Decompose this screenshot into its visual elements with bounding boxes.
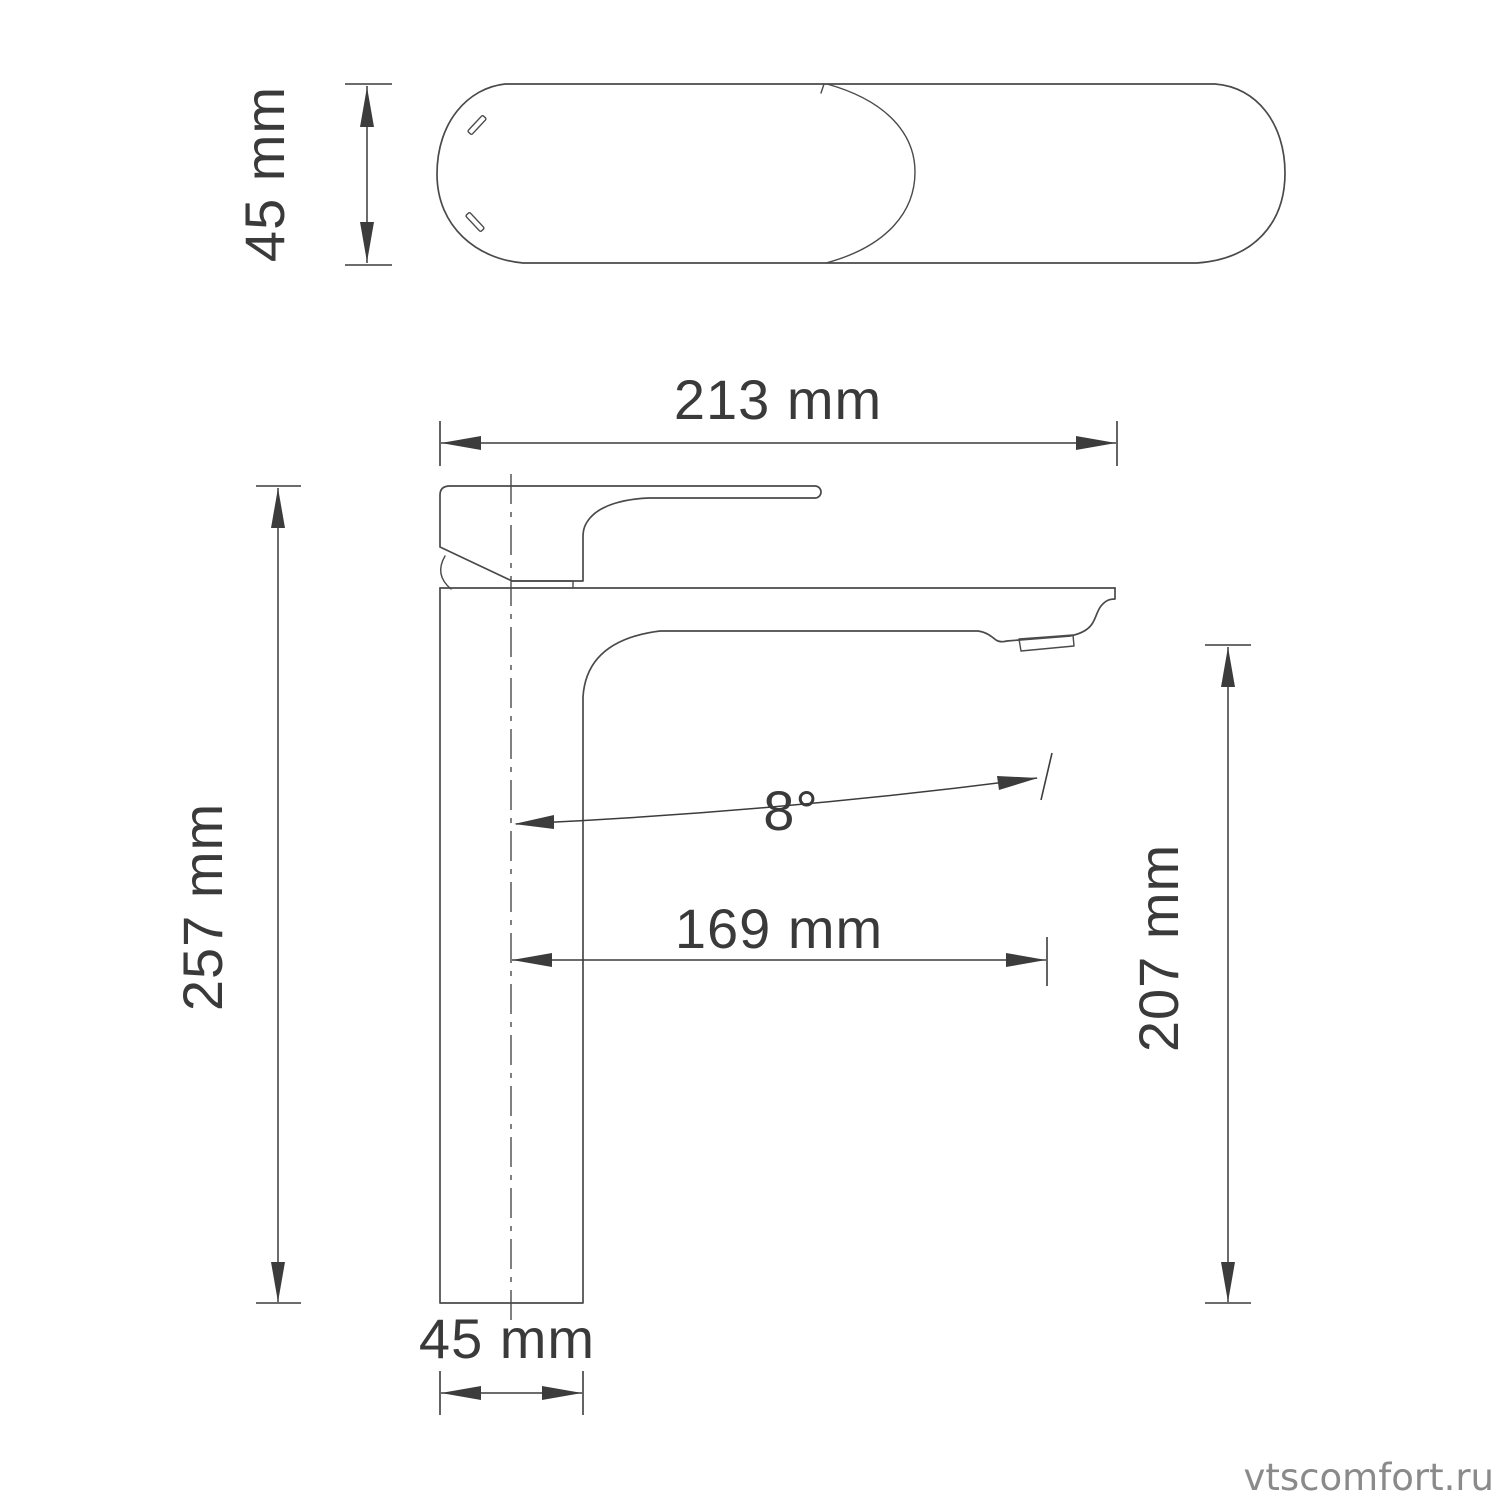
side-view-neck-front-arc bbox=[441, 556, 451, 589]
dim-label-overall-height: 257 mm bbox=[171, 803, 234, 1011]
watermark-text: vtscomfort.ru bbox=[1243, 1456, 1494, 1499]
dimension-overall-width: 213 mm bbox=[440, 368, 1117, 466]
side-view-handle-outline bbox=[440, 486, 821, 581]
faucet-top-view: 45 mm bbox=[233, 84, 1285, 265]
dimension-overall-height: 257 mm bbox=[171, 486, 301, 1303]
dim-label-top-view-height: 45 mm bbox=[233, 86, 296, 262]
side-view-cartridge-step bbox=[512, 581, 573, 588]
dim-arrow-up bbox=[1221, 647, 1235, 687]
dim-label-spout-outlet-height: 207 mm bbox=[1127, 844, 1190, 1052]
dim-arrow-up bbox=[360, 87, 374, 127]
dimension-spout-outlet-height: 207 mm bbox=[1127, 645, 1251, 1303]
dimension-top-view-height: 45 mm bbox=[233, 84, 392, 265]
top-view-slot-mark-lower bbox=[465, 212, 484, 232]
dim-arrow-down bbox=[1221, 1262, 1235, 1302]
dim-arrow-left bbox=[512, 953, 552, 967]
dim-label-spout-angle: 8° bbox=[763, 779, 819, 842]
top-view-body-outline bbox=[437, 84, 1285, 263]
top-view-handle-arc bbox=[826, 84, 915, 263]
top-view-handle-notch bbox=[821, 84, 824, 93]
dimension-spout-reach: 169 mm bbox=[512, 897, 1047, 986]
side-view-aerator-outline bbox=[1019, 635, 1074, 651]
dim-arrow-right bbox=[542, 1386, 582, 1400]
dim-label-base-width: 45 mm bbox=[419, 1307, 595, 1370]
dim-arrow-down bbox=[360, 222, 374, 262]
dimension-base-width: 45 mm bbox=[419, 1307, 595, 1415]
technical-drawing-page: 45 mm 213 mm 257 mm bbox=[0, 0, 1500, 1500]
dim-arrow-left bbox=[514, 815, 554, 829]
dim-arrow-right bbox=[997, 776, 1038, 790]
dim-arrow-left bbox=[441, 436, 481, 450]
top-view-slot-mark-upper bbox=[467, 115, 486, 135]
dim-arrow-right bbox=[1076, 436, 1116, 450]
dim-label-overall-width: 213 mm bbox=[674, 368, 882, 431]
dim-tick bbox=[1041, 753, 1052, 800]
dim-arrow-down bbox=[271, 1262, 285, 1302]
faucet-dimension-drawing: 45 mm 213 mm 257 mm bbox=[0, 0, 1500, 1500]
dim-label-spout-reach: 169 mm bbox=[675, 897, 883, 960]
dim-arrow-left bbox=[441, 1386, 481, 1400]
dim-arrow-right bbox=[1006, 953, 1046, 967]
dim-arrow-up bbox=[271, 488, 285, 528]
dimension-spout-angle: 8° bbox=[514, 753, 1052, 842]
